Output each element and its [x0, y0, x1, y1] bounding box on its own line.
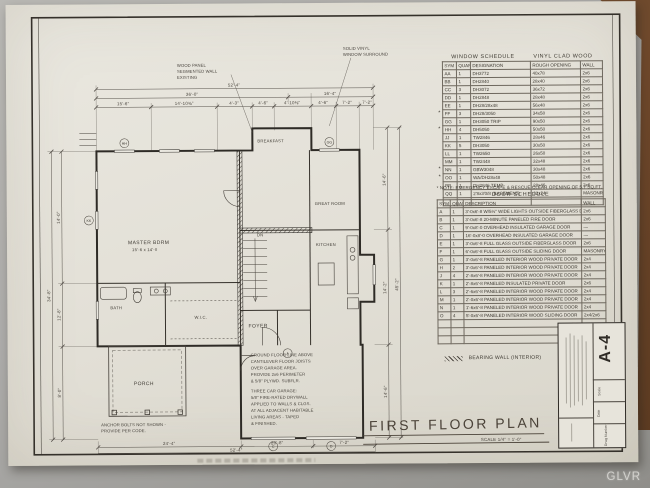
cell: D — [437, 231, 450, 239]
cell: 3 — [451, 287, 464, 295]
dim-right-seg-2: 14'-2" — [382, 281, 387, 294]
dim-top-seg-4: 4'-6" — [258, 100, 268, 105]
illegible-text-line — [578, 339, 580, 401]
egress-note: * NOTE: EMERGENCY ESCAPE & RESCUE CLEAR … — [437, 184, 605, 190]
cell: 2x6 — [581, 117, 603, 125]
column-header: SYM — [442, 62, 456, 70]
cell: M — [438, 295, 451, 303]
cell: 1 — [451, 255, 464, 263]
photo-of-floor-plan-drawing: 52'-4" 36'-0" 16'-4" 15'-6" 14'-10⅜" 4'-… — [0, 0, 650, 488]
photo-watermark: GLVR — [607, 471, 641, 483]
cell: 2x6 — [580, 77, 602, 85]
plan-title: FIRST FLOOR PLAN — [369, 414, 542, 433]
dim-top-seg-1: 15'-6" — [117, 101, 130, 106]
sheet-number: A-4 — [597, 334, 615, 363]
cell: JJ — [443, 134, 457, 142]
cell: — — [581, 222, 605, 230]
bearing-wall-legend: BEARING WALL (INTERIOR) — [445, 355, 542, 362]
cell: — — [581, 230, 605, 238]
floor-note-line5: & 5/8" PLYWD. SUBFLR. — [251, 378, 300, 383]
dim-left-seg-3: 8'-0" — [57, 388, 62, 398]
cell: 2x4 — [582, 302, 606, 310]
label-great-room: GREAT ROOM — [315, 201, 346, 206]
label-master-bdrm: MASTER BDRM — [128, 240, 169, 246]
cell: 2x6 — [581, 173, 603, 181]
dim-right-seg-3: 14'-6" — [383, 385, 388, 398]
cell: FF — [443, 110, 457, 118]
cell: 1 — [450, 231, 463, 239]
cell: 2x6 — [581, 125, 603, 133]
floor-note-line2: CANTILEVER FLOOR JOISTS — [251, 359, 311, 364]
cell: 3'-0x6'-8 PANELED INTERIOR WOOD PRIVATE … — [464, 254, 582, 263]
cell: OO — [443, 174, 457, 182]
label-stairs-dn: DN — [257, 232, 263, 237]
label-wic: W.I.C. — [194, 315, 207, 320]
tag-window-kk: KK — [86, 219, 91, 223]
cell: 2x4 — [582, 254, 606, 262]
garage-note-line3: APPLIED TO WALLS & CLGS. — [251, 401, 311, 406]
cell — [451, 327, 464, 335]
cell: 2x6 — [581, 149, 603, 157]
cell: 1'-6x6'-8 PANELED INTERIOR WOOD PRIVATE … — [464, 302, 582, 311]
cell: 6'-0x6'-8 FULL GLASS OUTSIDE SLIDING DOO… — [464, 246, 582, 255]
cell: 2'-6x6'-8 PANELED INTERIOR WOOD PRIVATE … — [464, 286, 582, 295]
cell: DD — [443, 94, 457, 102]
cell: GG — [443, 118, 457, 126]
cell: H — [438, 263, 451, 271]
cell: 16'-0x8'-0 OVERHEAD INSULATED GARAGE DOO… — [463, 230, 581, 239]
cell: 4 — [457, 126, 471, 134]
title-block: A-4 Scale Date Drwg Number — [557, 322, 626, 448]
cell: 2x6 — [581, 93, 603, 101]
cell: 1 — [457, 166, 471, 174]
dim-top-mid-2: 16'-4" — [324, 91, 337, 96]
anchor-note-line1: ANCHOR BOLTS NOT SHOWN - — [101, 422, 166, 427]
label-breakfast: BREAKFAST — [257, 138, 284, 143]
dim-top-seg-7: 7'-2" — [342, 100, 352, 105]
illegible-text-line — [566, 338, 568, 404]
dim-top-seg-6: 4'-6" — [318, 100, 328, 105]
cell: E — [437, 239, 450, 247]
dim-right-seg-1: 14'-6" — [382, 173, 387, 186]
garage-note-line6: & FINISHED. — [251, 421, 277, 426]
cell: 2x6 — [581, 141, 603, 149]
garage-note-line5: LIVING AREAS - TAPED — [251, 414, 299, 419]
window-schedule-subtitle: VINYL CLAD WOOD — [533, 53, 592, 59]
floor-note-line1: GROUND FLOOR LINE ABOVE — [251, 352, 313, 357]
illegible-text-line — [571, 423, 573, 441]
dim-left-seg-2: 12'-8" — [56, 308, 61, 321]
cell: NN — [443, 166, 457, 174]
window-schedule-title: WINDOW SCHEDULE — [451, 54, 515, 60]
label-porch: PORCH — [134, 381, 154, 387]
dim-left-overall: 34'-8" — [46, 289, 51, 302]
cell: BB — [442, 78, 456, 86]
cell — [438, 319, 451, 327]
window-note-line1: SOLID VINYL — [343, 46, 371, 51]
cell: 2x6 — [581, 85, 603, 93]
wall-note-line2: SEGMENTED WALL — [177, 69, 218, 74]
cell: 2x6 — [582, 278, 606, 286]
dim-top-seg-8: 7'-2" — [362, 100, 372, 105]
dim-bottom-overall: 52'-4" — [230, 448, 243, 453]
column-header: QUAN — [456, 62, 470, 70]
cell: 2x6 — [581, 165, 603, 173]
cell: 1 — [457, 134, 471, 142]
tag-door-d: D — [330, 444, 333, 448]
door-schedule: * NOTE: EMERGENCY ESCAPE & RESCUE CLEAR … — [437, 184, 606, 344]
cell: 2x4 — [582, 294, 606, 302]
cell: A — [437, 207, 450, 215]
cell: 2x6 — [581, 206, 605, 214]
garage-note-line2: 5/8" FIRE-RATED DRYWALL — [251, 395, 308, 400]
cell: 1 — [456, 78, 470, 86]
cell: CC — [443, 86, 457, 94]
tag-window-hh: HH — [122, 142, 128, 146]
cell — [438, 335, 451, 343]
column-header: WALL — [580, 61, 602, 69]
cell: 9'-0x8'-0 OVERHEAD INSULATED GARAGE DOOR — [463, 222, 581, 231]
cell: 2x6 — [581, 238, 605, 246]
dim-bottom-seg-1: 24'-4" — [163, 441, 176, 446]
cell: 2'-0x6'-8 PANELED INTERIOR WOOD PRIVATE … — [464, 294, 582, 303]
entry-steps — [79, 133, 96, 145]
cell: 1 — [457, 150, 471, 158]
cell: KK — [443, 142, 457, 150]
cell: 2x4 — [582, 262, 606, 270]
label-master-size: 15'-6 x 14'-0 — [132, 247, 158, 252]
cell: B — [437, 215, 450, 223]
column-header: WALL — [581, 198, 605, 206]
cell: 2x6 — [581, 109, 603, 117]
wall-note-line3: EXISTING — [177, 75, 197, 80]
floor-note-line3: OVER GARAGE AREA. — [251, 365, 297, 370]
illegible-text-line — [574, 335, 576, 405]
cell: AA — [442, 70, 456, 78]
cell: 2x6 — [581, 133, 603, 141]
footer-illegible-text — [197, 458, 315, 462]
cell: 1 — [457, 158, 471, 166]
cell: 1 — [457, 174, 471, 182]
floor-note-line4: PROVIDE 2x6 PERIMETER — [251, 372, 305, 377]
title-block-divider — [592, 323, 594, 447]
cell: 2'-8x6'-8 PANELED INTERIOR WOOD PRIVATE … — [464, 270, 582, 279]
garage-note-line1: THREE CAR GARAGE: — [251, 388, 297, 393]
label-foyer: FOYER — [248, 323, 267, 329]
cell: 2x6 — [580, 69, 602, 77]
cell: HH — [443, 126, 457, 134]
cell: 3 — [457, 86, 471, 94]
cell — [438, 327, 451, 335]
garage-note-line4: AT ALL ADJACENT HABITABLE — [251, 408, 314, 413]
dim-bottom-seg-3: 7'-2" — [339, 440, 349, 445]
bath-fixtures — [100, 287, 236, 340]
cell: N — [438, 303, 451, 311]
cell — [451, 335, 464, 343]
bearing-wall-hatch — [237, 150, 313, 345]
window-note-line2: WINDOW SURROUND — [343, 52, 388, 57]
hatch-swatch-icon — [445, 356, 463, 361]
wall-openings — [95, 148, 376, 440]
cell: 2x4 — [582, 270, 606, 278]
cell: 2x4 — [582, 286, 606, 294]
field-scale: Scale — [597, 387, 601, 396]
cell: 1 — [457, 102, 471, 110]
cell: 2x6 — [581, 157, 603, 165]
cell: 2 — [451, 263, 464, 271]
illegible-text-line — [570, 333, 572, 407]
cell: 2x6 — [581, 214, 605, 222]
dim-top-seg-3: 4'-3" — [229, 101, 239, 106]
cell: 1 — [451, 303, 464, 311]
bearing-wall-label: BEARING WALL (INTERIOR) — [469, 355, 542, 361]
cell: K — [438, 279, 451, 287]
cell: 1 — [450, 239, 463, 247]
cell: L — [438, 287, 451, 295]
cell: 1 — [457, 94, 471, 102]
window-schedule: WINDOW SCHEDULE VINYL CLAD WOOD SYMQUAND… — [442, 53, 603, 206]
cell: F — [438, 247, 451, 255]
cell: 5 — [457, 142, 471, 150]
cell: 3'-0x6'-8 W/5½" WIDE LIGHTS OUTSIDE FIBE… — [463, 206, 581, 215]
dim-top-seg-2: 14'-10⅜" — [175, 101, 194, 106]
cell: 3'-0x6'-8 FULL GLASS OUTSIDE FIBERGLASS … — [463, 238, 581, 247]
tag-door-c: C — [272, 445, 275, 449]
cell: 1 — [450, 223, 463, 231]
field-drwg-number: Drwg Number — [604, 424, 608, 446]
cell: 1 — [451, 247, 464, 255]
cell: G — [438, 255, 451, 263]
field-date: Date — [597, 410, 601, 417]
door-schedule-title: DOOR SCHEDULE — [437, 191, 605, 198]
cell: 2'-8x6'-8 PANELED INSULATED PRIVATE DOOR — [464, 278, 582, 287]
cell: 1 — [456, 70, 470, 78]
cell: MM — [443, 158, 457, 166]
dim-top-mid-1: 36'-0" — [186, 92, 199, 97]
label-kitchen: KITCHEN — [316, 242, 336, 247]
cell: 2x4/2x6 — [582, 310, 606, 318]
cell: 3 — [457, 110, 471, 118]
dim-right-overall: 45'-2" — [394, 278, 399, 291]
cell: 4 — [451, 271, 464, 279]
cell: 1 — [451, 279, 464, 287]
cell: 5'-0x6'-8 PANELED INTERIOR WOOD SLIDING … — [464, 310, 582, 319]
cell: J — [438, 271, 451, 279]
cell: LL — [443, 150, 457, 158]
cell: EE — [443, 102, 457, 110]
wall-note-line1: WOOD PANEL — [177, 63, 207, 68]
dim-top-seg-5: 4'-10⅜" — [284, 100, 301, 105]
cell: 3'-0x6'-8 PANELED INTERIOR WOOD PRIVATE … — [464, 262, 582, 271]
stairs — [243, 238, 267, 301]
cell: MASONRY — [582, 246, 606, 254]
column-header: QUAN — [450, 199, 463, 207]
cell: O — [438, 311, 451, 319]
plan-scale: SCALE 1/4" = 1'-0" — [481, 437, 522, 442]
column-header: SYM — [437, 199, 450, 207]
cell: 2x6 — [581, 101, 603, 109]
label-bath: BATH — [110, 305, 122, 310]
tag-window-gg: GG — [327, 140, 333, 144]
illegible-text-line — [586, 341, 588, 399]
cell: 1 — [451, 295, 464, 303]
cell: C — [437, 223, 450, 231]
dim-left-seg-1: 14'-0" — [56, 211, 61, 224]
cell: 4 — [451, 311, 464, 319]
anchor-note-line2: PROVIDE PER CODE. — [101, 428, 146, 433]
cell: 1 — [450, 215, 463, 223]
illegible-text-line — [582, 335, 584, 405]
cell: 1 — [457, 118, 471, 126]
paper-wrap: 52'-4" 36'-0" 16'-4" 15'-6" 14'-10⅜" 4'-… — [0, 0, 650, 488]
cell: 1 — [450, 207, 463, 215]
cell — [451, 319, 464, 327]
dimensions-left — [47, 149, 98, 441]
